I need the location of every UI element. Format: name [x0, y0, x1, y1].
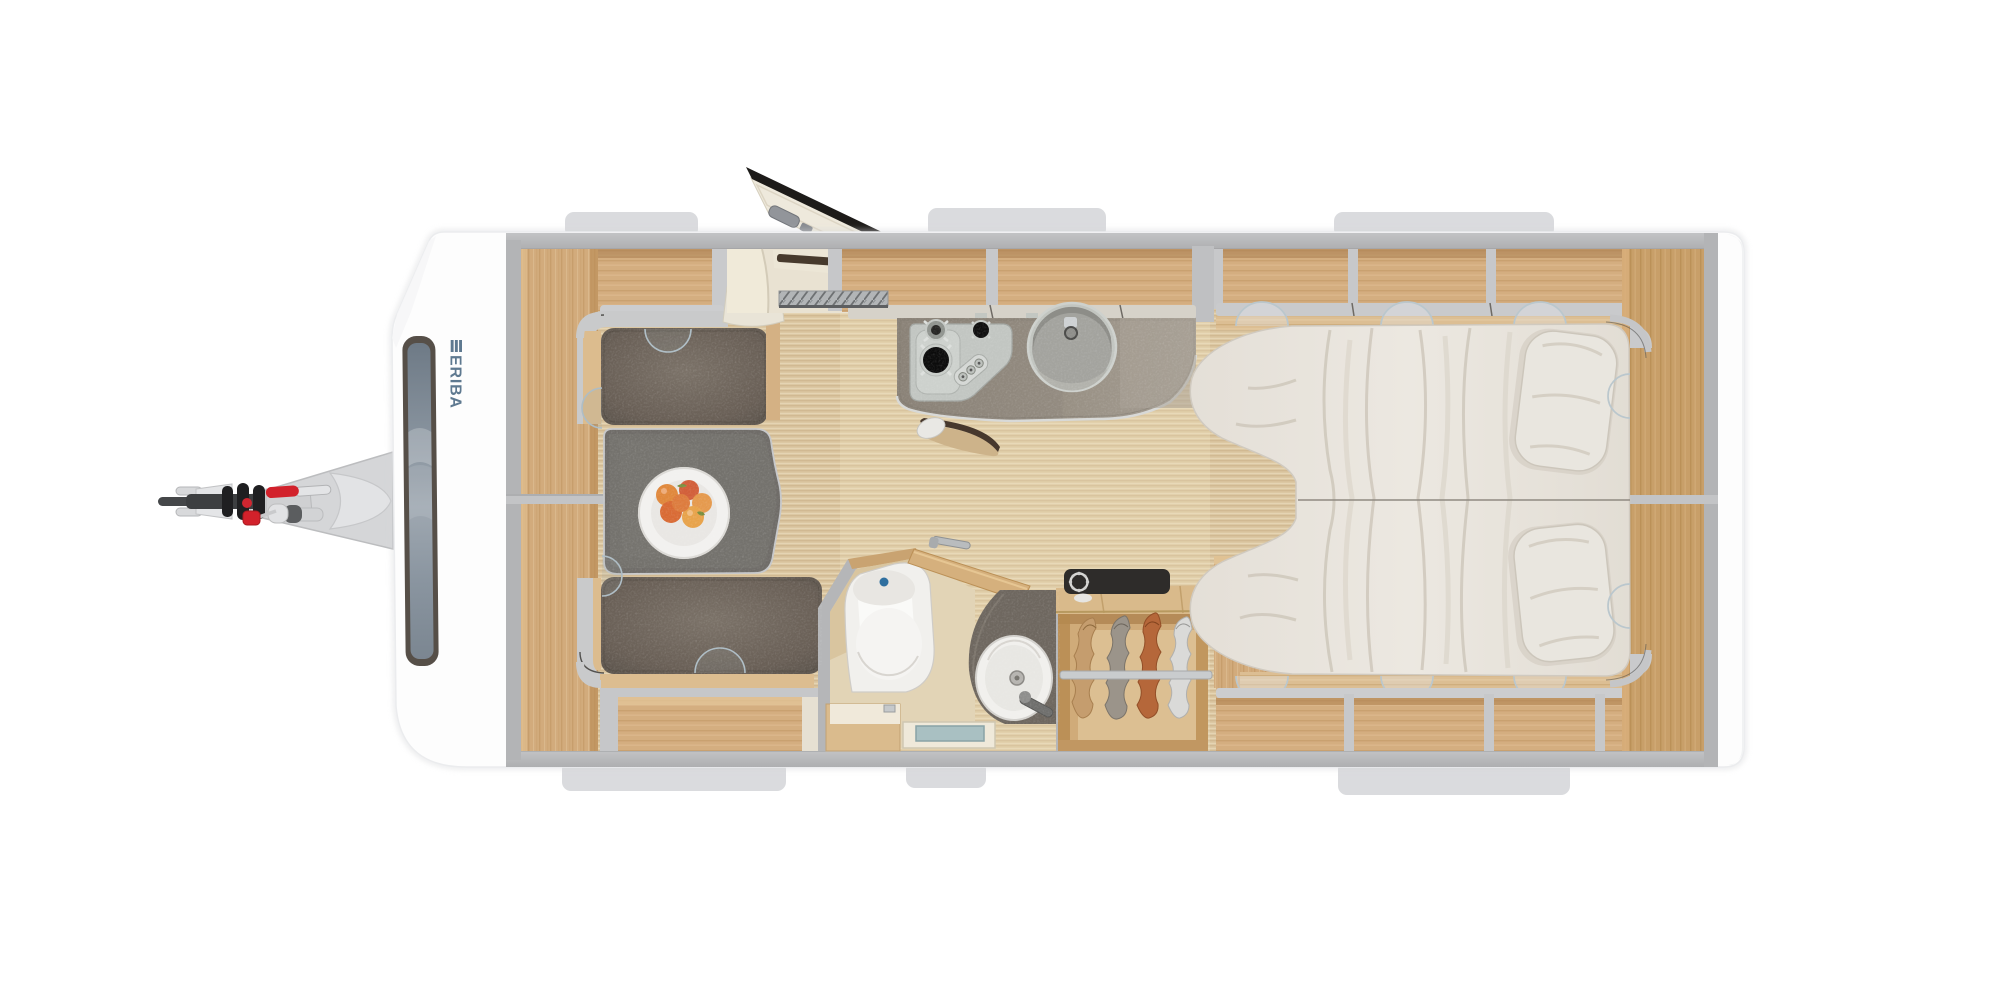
svg-text:ERIBA: ERIBA	[447, 355, 464, 409]
